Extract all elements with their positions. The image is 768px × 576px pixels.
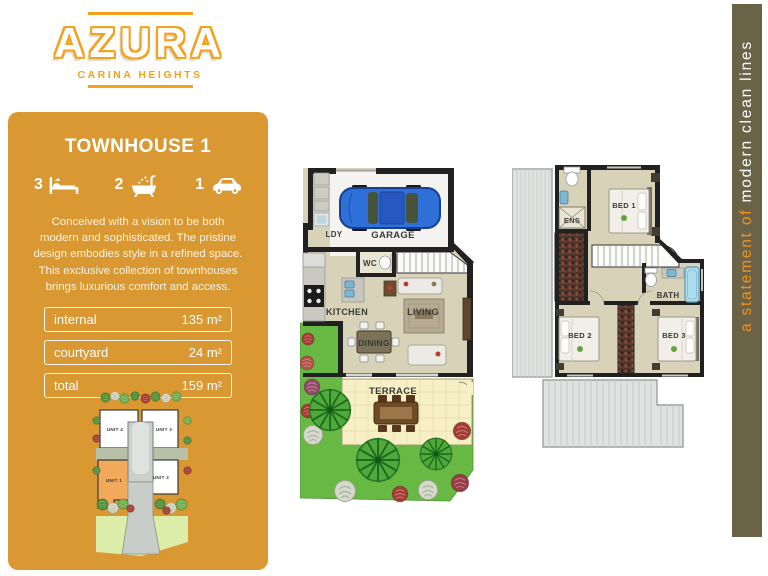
sofa-2 — [408, 345, 446, 365]
unit-4-label: UNIT 4 — [107, 427, 123, 432]
sliding-door-right — [396, 374, 438, 377]
tagline-lead: a statement of — [738, 202, 755, 332]
tagline-bar: a statement of modern clean lines — [732, 4, 762, 537]
bed2-label: BED 2 — [568, 331, 592, 340]
area-row-courtyard: courtyard 24 m² — [44, 340, 232, 365]
sofa — [398, 278, 442, 294]
feature-cars: 1 — [195, 176, 242, 195]
brochure-page: AZURA CARINA HEIGHTS TOWNHOUSE 1 3 2 — [0, 0, 768, 576]
bed1-label: BED 1 — [612, 201, 636, 210]
roof-bottom — [543, 380, 683, 447]
area-value: 135 m² — [182, 312, 222, 327]
bed2-window — [567, 375, 593, 377]
bed3-label: BED 3 — [662, 331, 686, 340]
townhouse-info-panel: TOWNHOUSE 1 3 2 — [8, 112, 268, 570]
tagline-text: a statement of modern clean lines — [732, 4, 762, 537]
sink — [345, 281, 354, 288]
bed-icon — [49, 175, 79, 196]
ens-toilet — [566, 172, 578, 186]
description-text: Conceived with a vision to be both moder… — [32, 214, 244, 295]
robe-center — [618, 305, 634, 373]
bed-count: 3 — [34, 176, 43, 194]
logo-rule-bottom — [88, 85, 193, 88]
bed3-window — [662, 375, 688, 377]
logo-block: AZURA CARINA HEIGHTS — [50, 8, 230, 92]
feature-beds: 3 — [34, 175, 79, 196]
bath-icon — [129, 174, 159, 197]
garage-door — [336, 170, 376, 172]
area-label: internal — [54, 312, 97, 327]
feature-baths: 2 — [115, 174, 160, 197]
ens-basin — [560, 191, 568, 204]
bath-window — [701, 269, 703, 291]
feature-row: 3 2 1 — [8, 170, 268, 200]
palm-tree — [420, 438, 451, 469]
site-plan: UNIT 4 UNIT 3 UNIT 1 UNIT 2 — [92, 388, 192, 568]
area-label: courtyard — [54, 345, 108, 360]
bath-label: BATH — [657, 291, 680, 300]
outdoor-dining-set — [374, 395, 418, 432]
ens-label: ENS — [564, 216, 580, 225]
ldy-label: LDY — [326, 230, 343, 239]
bathtub — [685, 267, 699, 302]
area-label: total — [54, 378, 79, 393]
ground-floor-plan: LDY GARAGE WC KITCHEN LIVING DINING TERR… — [300, 163, 496, 511]
unit-1-label: UNIT 1 — [106, 478, 122, 483]
bed3-door-opening — [638, 301, 650, 305]
bath-count: 2 — [115, 176, 124, 194]
tv-unit — [463, 298, 471, 340]
robe-left — [555, 233, 584, 301]
area-value: 24 m² — [189, 345, 222, 360]
logo-title: AZURA — [50, 19, 230, 67]
palm-tree — [310, 390, 351, 431]
fridge — [303, 253, 325, 267]
roof-left — [512, 169, 552, 377]
area-row-internal: internal 135 m² — [44, 307, 232, 332]
car-count: 1 — [195, 176, 204, 194]
townhouse-title: TOWNHOUSE 1 — [8, 136, 268, 158]
sliding-door-left — [346, 374, 372, 377]
upper-floor-plan: ENS BED 1 BATH BED 2 BED 3 — [512, 165, 712, 450]
tagline-emphasis: modern clean lines — [738, 39, 755, 202]
bed1-window — [607, 167, 641, 169]
car — [340, 185, 440, 231]
terrace-label: TERRACE — [369, 386, 417, 397]
cooktop — [304, 285, 324, 307]
bath-toilet — [646, 274, 657, 287]
area-table: internal 135 m² courtyard 24 m² total 15… — [44, 307, 232, 398]
logo-rule-top — [88, 12, 193, 15]
unit-2-label: UNIT 2 — [153, 475, 169, 480]
kitchen-label: KITCHEN — [326, 307, 368, 317]
unit-3-label: UNIT 3 — [156, 427, 172, 432]
car-icon — [210, 176, 242, 195]
garage-label: GARAGE — [371, 230, 415, 241]
bed2-door-opening — [590, 301, 604, 305]
living-label: LIVING — [407, 307, 439, 317]
dining-label: DINING — [358, 338, 390, 348]
courtyard-gate — [467, 382, 473, 395]
palm-tree — [357, 439, 399, 481]
logo-subtitle: CARINA HEIGHTS — [50, 69, 230, 81]
wc-label: WC — [363, 259, 377, 268]
